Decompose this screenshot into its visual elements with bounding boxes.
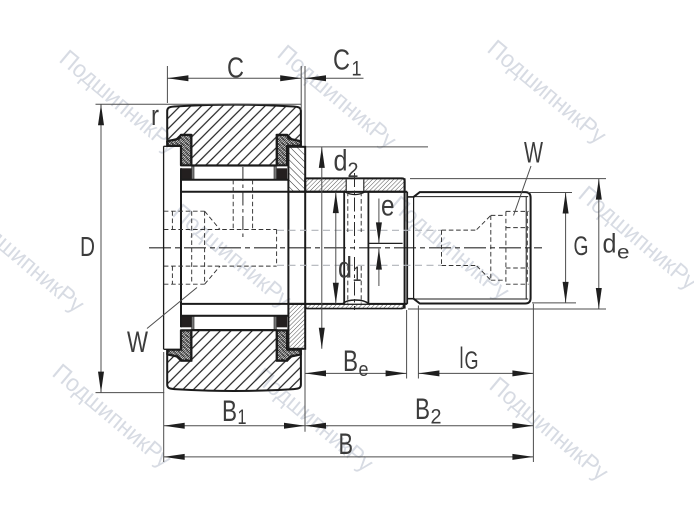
svg-text:B: B bbox=[415, 393, 430, 426]
svg-text:ПодшипникРу: ПодшипникРу bbox=[482, 35, 611, 150]
svg-text:2: 2 bbox=[431, 406, 442, 429]
svg-text:d: d bbox=[338, 252, 352, 285]
svg-text:e: e bbox=[381, 190, 395, 223]
svg-text:C: C bbox=[333, 45, 350, 77]
svg-text:B: B bbox=[339, 428, 354, 461]
svg-text:G: G bbox=[574, 231, 589, 261]
svg-text:1: 1 bbox=[238, 406, 247, 429]
svg-text:D: D bbox=[80, 231, 95, 262]
svg-text:W: W bbox=[127, 326, 148, 359]
svg-text:B: B bbox=[222, 395, 237, 428]
svg-text:1: 1 bbox=[352, 58, 362, 81]
svg-text:1: 1 bbox=[353, 263, 362, 286]
svg-text:W: W bbox=[524, 137, 543, 170]
svg-text:d: d bbox=[334, 145, 348, 178]
svg-text:l: l bbox=[460, 342, 464, 375]
svg-text:d: d bbox=[603, 228, 617, 258]
svg-text:ПодшипникРу: ПодшипникРу bbox=[573, 181, 694, 296]
svg-text:ПодшипникРу: ПодшипникРу bbox=[0, 204, 89, 319]
svg-text:C: C bbox=[227, 53, 244, 85]
svg-text:ПодшипникРу: ПодшипникРу bbox=[484, 372, 613, 487]
svg-text:e: e bbox=[617, 243, 630, 264]
svg-text:ПодшипникРу: ПодшипникРу bbox=[47, 359, 176, 474]
svg-text:B: B bbox=[343, 345, 358, 378]
svg-text:ПодшипникРу: ПодшипникРу bbox=[54, 45, 183, 160]
svg-text:2: 2 bbox=[348, 159, 359, 182]
svg-text:e: e bbox=[359, 359, 369, 381]
svg-text:G: G bbox=[465, 347, 479, 375]
